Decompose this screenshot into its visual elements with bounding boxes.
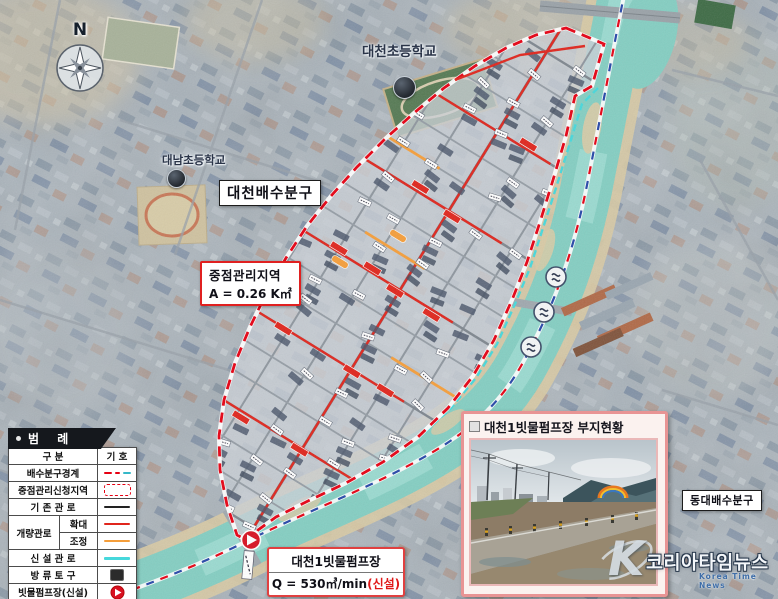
flow-value: 530㎥/min: [300, 577, 367, 591]
compass-star-icon: [52, 40, 108, 96]
district-name-box: 대천배수분구: [219, 180, 321, 206]
neighbor-district-box: 동대배수분구: [682, 490, 762, 511]
adjusted-pipe-symbol: [104, 540, 130, 543]
site-photo: [469, 438, 658, 586]
management-area-box: 중점관리지역 A = 0.26 K㎡: [200, 261, 301, 306]
legend-title: 범 례: [28, 430, 75, 447]
site-photo-drawing: [471, 440, 656, 584]
new-pipe-symbol: [104, 557, 130, 560]
compass-rose: N: [50, 20, 110, 100]
outfall-symbol: [110, 569, 124, 581]
priority-area-symbol: [104, 484, 131, 496]
legend-label: 중점관리신청지역: [9, 482, 98, 499]
flow-note: (신설): [367, 577, 400, 591]
legend-label: 조정: [60, 533, 98, 550]
legend-row-new-pipe: 신 설 관 로: [9, 550, 137, 567]
management-area-title: 중점관리지역: [209, 265, 292, 284]
label-daecheon-elementary: 대천초등학교: [362, 40, 437, 60]
legend-label: 확대: [60, 516, 98, 533]
inset-title-row: 대천1빗물펌프장 부지현황: [464, 414, 665, 438]
pump-station-symbol: [110, 585, 125, 599]
news-map-image: N 대천초등학교 대남초등학교 대천배수분구 동대배수분구 중점관리지역 A =…: [0, 0, 778, 599]
legend-row-priority-area: 중점관리신청지역: [9, 482, 137, 499]
bullet-icon: [16, 436, 21, 441]
compass-north-label: N: [50, 20, 110, 40]
pump-capacity-box: 대천1빗물펌프장 Q = 530㎥/min(신설): [267, 547, 405, 597]
existing-pipe-symbol: [104, 506, 130, 509]
square-icon: [469, 421, 480, 432]
legend-label: 기 존 관 로: [9, 499, 98, 516]
management-area-value: A = 0.26 K㎡: [209, 285, 292, 302]
legend-table: 구 분 기 호 배수분구경계 중점관리신청지역 기 존 관 로 개량관: [8, 447, 137, 599]
expanded-pipe-symbol: [104, 523, 130, 526]
legend-row-pump: 빗물펌프장(신설): [9, 584, 137, 599]
legend-label: 방 류 토 구: [9, 567, 98, 584]
pump-flow: Q = 530㎥/min(신설): [269, 573, 403, 595]
legend-col-symbol: 기 호: [98, 448, 137, 465]
legend-header-row: 구 분 기 호: [9, 448, 137, 465]
legend-row-boundary: 배수분구경계: [9, 465, 137, 482]
school-icon: [167, 169, 186, 188]
pump-name: 대천1빗물펌프장: [269, 549, 403, 573]
legend-col-category: 구 분: [9, 448, 98, 465]
legend-row-improved-expand: 개량관로 확대: [9, 516, 137, 533]
legend-label-group: 개량관로: [9, 516, 60, 550]
legend-label: 신 설 관 로: [9, 550, 98, 567]
legend-row-existing-pipe: 기 존 관 로: [9, 499, 137, 516]
pump-site-inset: 대천1빗물펌프장 부지현황: [461, 411, 668, 597]
basin-boundary-symbol: [98, 472, 136, 475]
school-icon: [393, 76, 416, 99]
flow-label: Q =: [272, 577, 301, 591]
inset-title: 대천1빗물펌프장 부지현황: [484, 417, 624, 436]
legend-title-banner: 범 례: [8, 428, 116, 449]
label-daenam-elementary: 대남초등학교: [162, 152, 225, 168]
legend-label: 빗물펌프장(신설): [9, 584, 98, 599]
legend-label: 배수분구경계: [9, 465, 98, 482]
legend-row-outfall: 방 류 토 구: [9, 567, 137, 584]
